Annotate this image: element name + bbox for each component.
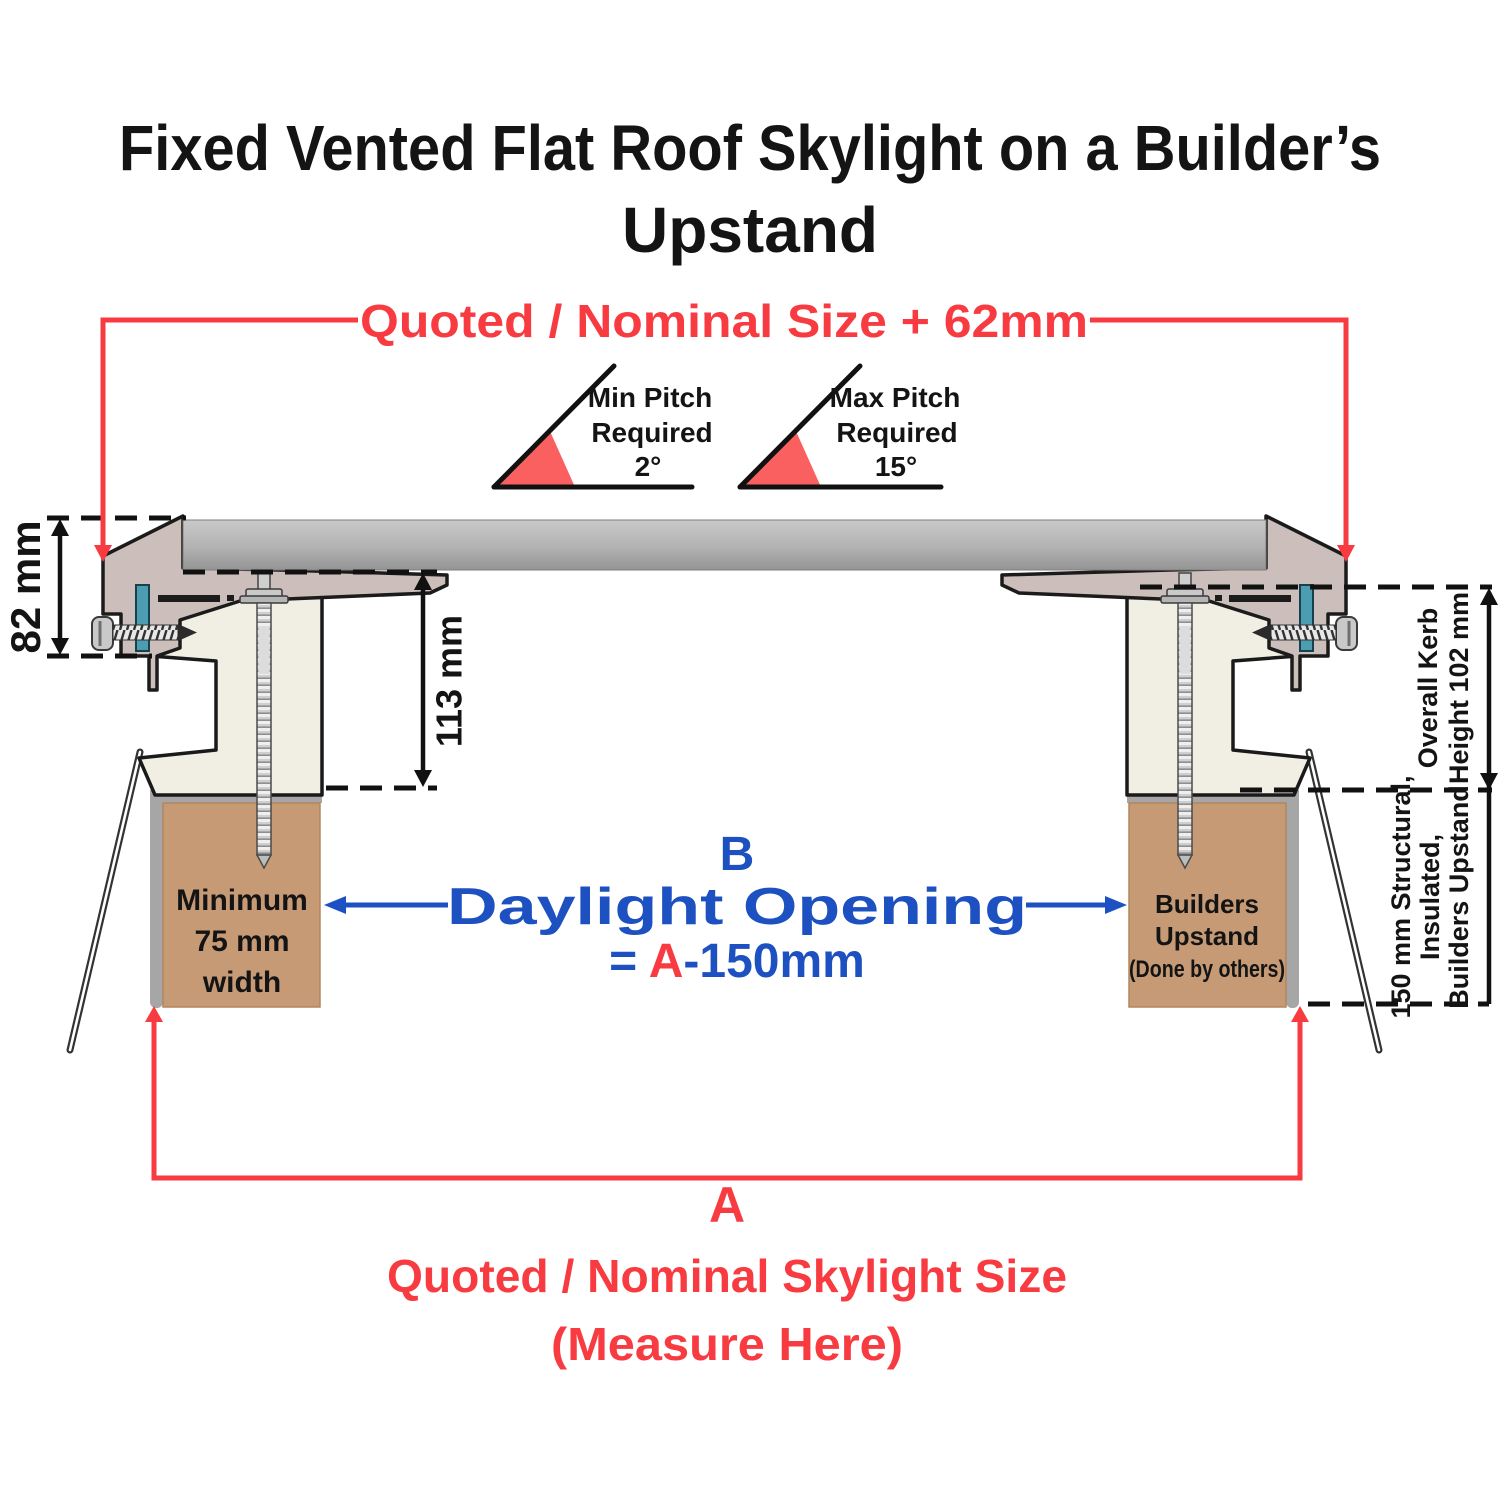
top-bracket-left — [103, 320, 358, 548]
roof-membrane-flashing — [70, 752, 140, 1050]
kerb-fixing-rod — [257, 603, 271, 868]
thermal-gasket — [136, 585, 149, 651]
page-title-line1: Fixed Vented Flat Roof Skylight on a Bui… — [119, 112, 1381, 184]
max-pitch-value: 15° — [875, 451, 917, 482]
formula-prefix: = — [609, 935, 649, 988]
frame-seal-bar — [158, 595, 220, 602]
upstand-spec-label-line2: Insulated, — [1415, 834, 1445, 960]
quoted-nominal-size-label: Quoted / Nominal Size + 62mm — [360, 295, 1088, 347]
formula-a: A — [649, 935, 684, 988]
left-upstand-line2: 75 mm — [194, 925, 289, 958]
upstand-spec-label-line1: 150 mm Structural, — [1386, 775, 1416, 1018]
upstand-side-membrane — [150, 790, 163, 1008]
left-upstand-line1: Minimum — [176, 884, 308, 917]
daylight-opening-formula: = A-150mm — [609, 935, 865, 988]
overall-kerb-height-label-line1: Overall Kerb — [1413, 608, 1443, 769]
max-pitch-wedge — [740, 429, 821, 487]
page-title-line2: Upstand — [622, 194, 878, 266]
nominal-size-label-line2: (Measure Here) — [551, 1318, 903, 1370]
daylight-opening-name: Daylight Opening — [447, 878, 1027, 936]
daylight-opening-letter: B — [720, 828, 755, 881]
right-upstand-line1: Builders — [1155, 889, 1259, 919]
min-pitch-line1: Min Pitch — [588, 382, 712, 413]
right-upstand-line2: Upstand — [1155, 921, 1259, 951]
diagram-canvas: Fixed Vented Flat Roof Skylight on a Bui… — [0, 0, 1500, 1500]
overall-kerb-height-label-line2: Height 102 mm — [1444, 592, 1474, 784]
frame-height-label: 82 mm — [2, 520, 49, 653]
left-upstand-line3: width — [202, 966, 281, 999]
min-pitch-wedge — [494, 429, 575, 487]
bottom-bracket — [154, 1018, 1300, 1178]
kerb-inner-height-label: 113 mm — [429, 615, 470, 747]
min-pitch-value: 2° — [635, 451, 662, 482]
max-pitch-line2: Required — [836, 417, 957, 448]
min-pitch-line2: Required — [591, 417, 712, 448]
max-pitch-line1: Max Pitch — [830, 382, 961, 413]
bottom-bracket-left-arrow — [145, 1006, 163, 1022]
top-bracket-right — [1090, 320, 1346, 548]
formula-suffix: -150mm — [683, 935, 864, 988]
upstand-spec-label-line3: Builders Upstand — [1444, 785, 1474, 1009]
bottom-bracket-right-arrow — [1291, 1006, 1309, 1022]
nominal-size-label-line1: Quoted / Nominal Skylight Size — [387, 1250, 1067, 1302]
right-upstand-line3: (Done by others) — [1129, 956, 1285, 983]
glass-panel — [183, 520, 1266, 570]
skylight-installation-diagram: Fixed Vented Flat Roof Skylight on a Bui… — [0, 0, 1500, 1500]
nominal-size-letter: A — [709, 1177, 745, 1233]
frame-seal-dot — [227, 595, 234, 601]
